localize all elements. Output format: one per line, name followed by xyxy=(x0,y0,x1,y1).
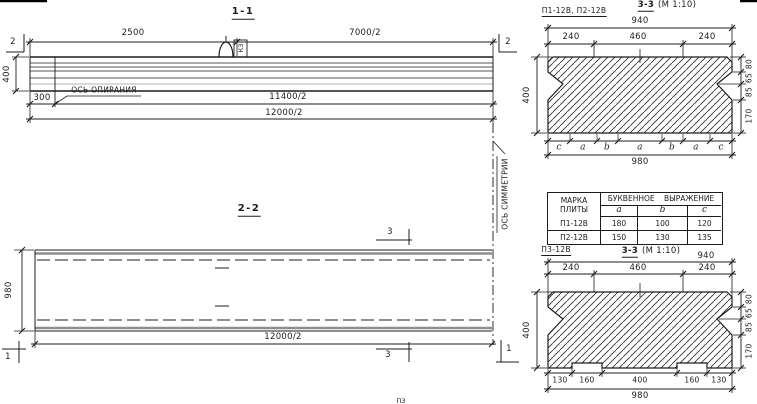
dim-label: 240 xyxy=(698,264,715,273)
letter-dim: c xyxy=(718,144,723,153)
dim-label: 12000/2 xyxy=(264,333,301,342)
cut-marker-1-right: 1 xyxy=(506,345,512,354)
section-2-2-linework xyxy=(2,229,519,363)
dim-label: 12000/2 xyxy=(265,109,302,118)
section-3-3-top-title: 3-3(М 1:10) xyxy=(638,1,696,10)
dim-label: 940 xyxy=(697,252,714,261)
dim-label: 85 xyxy=(745,87,753,97)
cut-marker-3-bottom: 3 xyxy=(385,351,391,360)
table-cell: П1-12В xyxy=(548,217,601,231)
plate-dimension-table: МАРКА ПЛИТЫ БУКВЕННОЕ ВЫРАЖЕНИЕ a b c П1… xyxy=(547,192,723,245)
section-3-3-bottom-linework xyxy=(531,258,746,393)
letter-dim: b xyxy=(604,144,610,153)
table-cell: 130 xyxy=(638,231,688,244)
dim-label: 170 xyxy=(745,343,753,358)
cross-section-body xyxy=(548,57,732,133)
dim-label: 940 xyxy=(631,17,648,26)
table-cell: 120 xyxy=(688,217,721,231)
cut-marker-1-left: 1 xyxy=(5,353,11,362)
table-header-mark: МАРКА ПЛИТЫ xyxy=(548,193,601,217)
table-cell: 180 xyxy=(601,217,638,231)
support-axis-leader xyxy=(55,96,141,104)
cross-section-body xyxy=(548,292,732,368)
letter-dim: a xyxy=(637,144,643,153)
table-header-expression: БУКВЕННОЕ ВЫРАЖЕНИЕ xyxy=(601,193,721,206)
section-2-2-title: 2-2 xyxy=(238,204,261,217)
letter-dim: b xyxy=(669,144,675,153)
dim-label: 80 xyxy=(745,294,753,304)
dim-label: 400 xyxy=(3,65,12,82)
plate-label: П3-12В xyxy=(541,246,571,256)
dim-label: 7000/2 xyxy=(349,29,381,38)
section-1-1-title: 1-1 xyxy=(232,7,255,20)
dim-label: 240 xyxy=(562,33,579,42)
table-cell: 150 xyxy=(601,231,638,244)
cutoff-text-fragment: ПЗ xyxy=(396,398,405,404)
dim-label: 460 xyxy=(629,33,646,42)
letter-dim: c xyxy=(556,144,561,153)
dim-label: 80 xyxy=(745,59,753,69)
dim-label: 160 xyxy=(684,376,699,384)
symmetry-axis-linework xyxy=(493,123,505,345)
table-cell: 100 xyxy=(638,217,688,231)
dim-label: 460 xyxy=(629,264,646,273)
dim-label: 400 xyxy=(632,376,647,384)
dim-label: 240 xyxy=(562,264,579,273)
dim-label: 65 xyxy=(745,308,753,318)
dim-label: 130 xyxy=(552,376,567,384)
loop-tag: К3 xyxy=(237,44,244,53)
dim-label: 11400/2 xyxy=(269,93,306,102)
table-subheader-a: a xyxy=(601,206,638,217)
plates-label: П1-12В, П2-12В xyxy=(542,7,607,17)
dim-label: 130 xyxy=(711,376,726,384)
dim-label: 400 xyxy=(523,321,532,338)
section-1-1-linework xyxy=(6,34,517,123)
dim-label: 300 xyxy=(33,94,50,103)
table-cell: П2-12В xyxy=(548,231,601,244)
section-3-3-bottom-title: 3-3(М 1:10) xyxy=(622,247,680,256)
cut-marker-3-top: 3 xyxy=(387,228,393,237)
dim-label: 980 xyxy=(631,392,648,401)
dim-label: 85 xyxy=(745,322,753,332)
support-axis-label: ОСЬ ОПИРАНИЯ xyxy=(71,86,137,94)
dim-label: 160 xyxy=(579,376,594,384)
blueprint-sheet: 1-1 2500 7000/2 2 2 400 300 ОСЬ ОПИРАНИЯ… xyxy=(0,0,757,404)
table-subheader-b: b xyxy=(638,206,688,217)
table-subheader-c: c xyxy=(688,206,721,217)
dim-label: 65 xyxy=(745,73,753,83)
dim-label: 170 xyxy=(745,108,753,123)
table-cell: 135 xyxy=(688,231,721,244)
dim-label: 240 xyxy=(698,33,715,42)
cut-marker-2-right: 2 xyxy=(505,38,511,47)
lifting-loop xyxy=(219,42,233,57)
dim-label: 980 xyxy=(631,158,648,167)
dim-label: 2500 xyxy=(122,29,145,38)
dim-label: 400 xyxy=(523,86,532,103)
dim-label: 980 xyxy=(5,281,14,298)
letter-dim: a xyxy=(580,144,586,153)
section-3-3-top-linework xyxy=(531,24,746,159)
cut-marker-2-left: 2 xyxy=(10,38,16,47)
letter-dim: a xyxy=(693,144,699,153)
symmetry-axis-label: ОСЬ СИММЕТРИИ xyxy=(501,158,509,229)
